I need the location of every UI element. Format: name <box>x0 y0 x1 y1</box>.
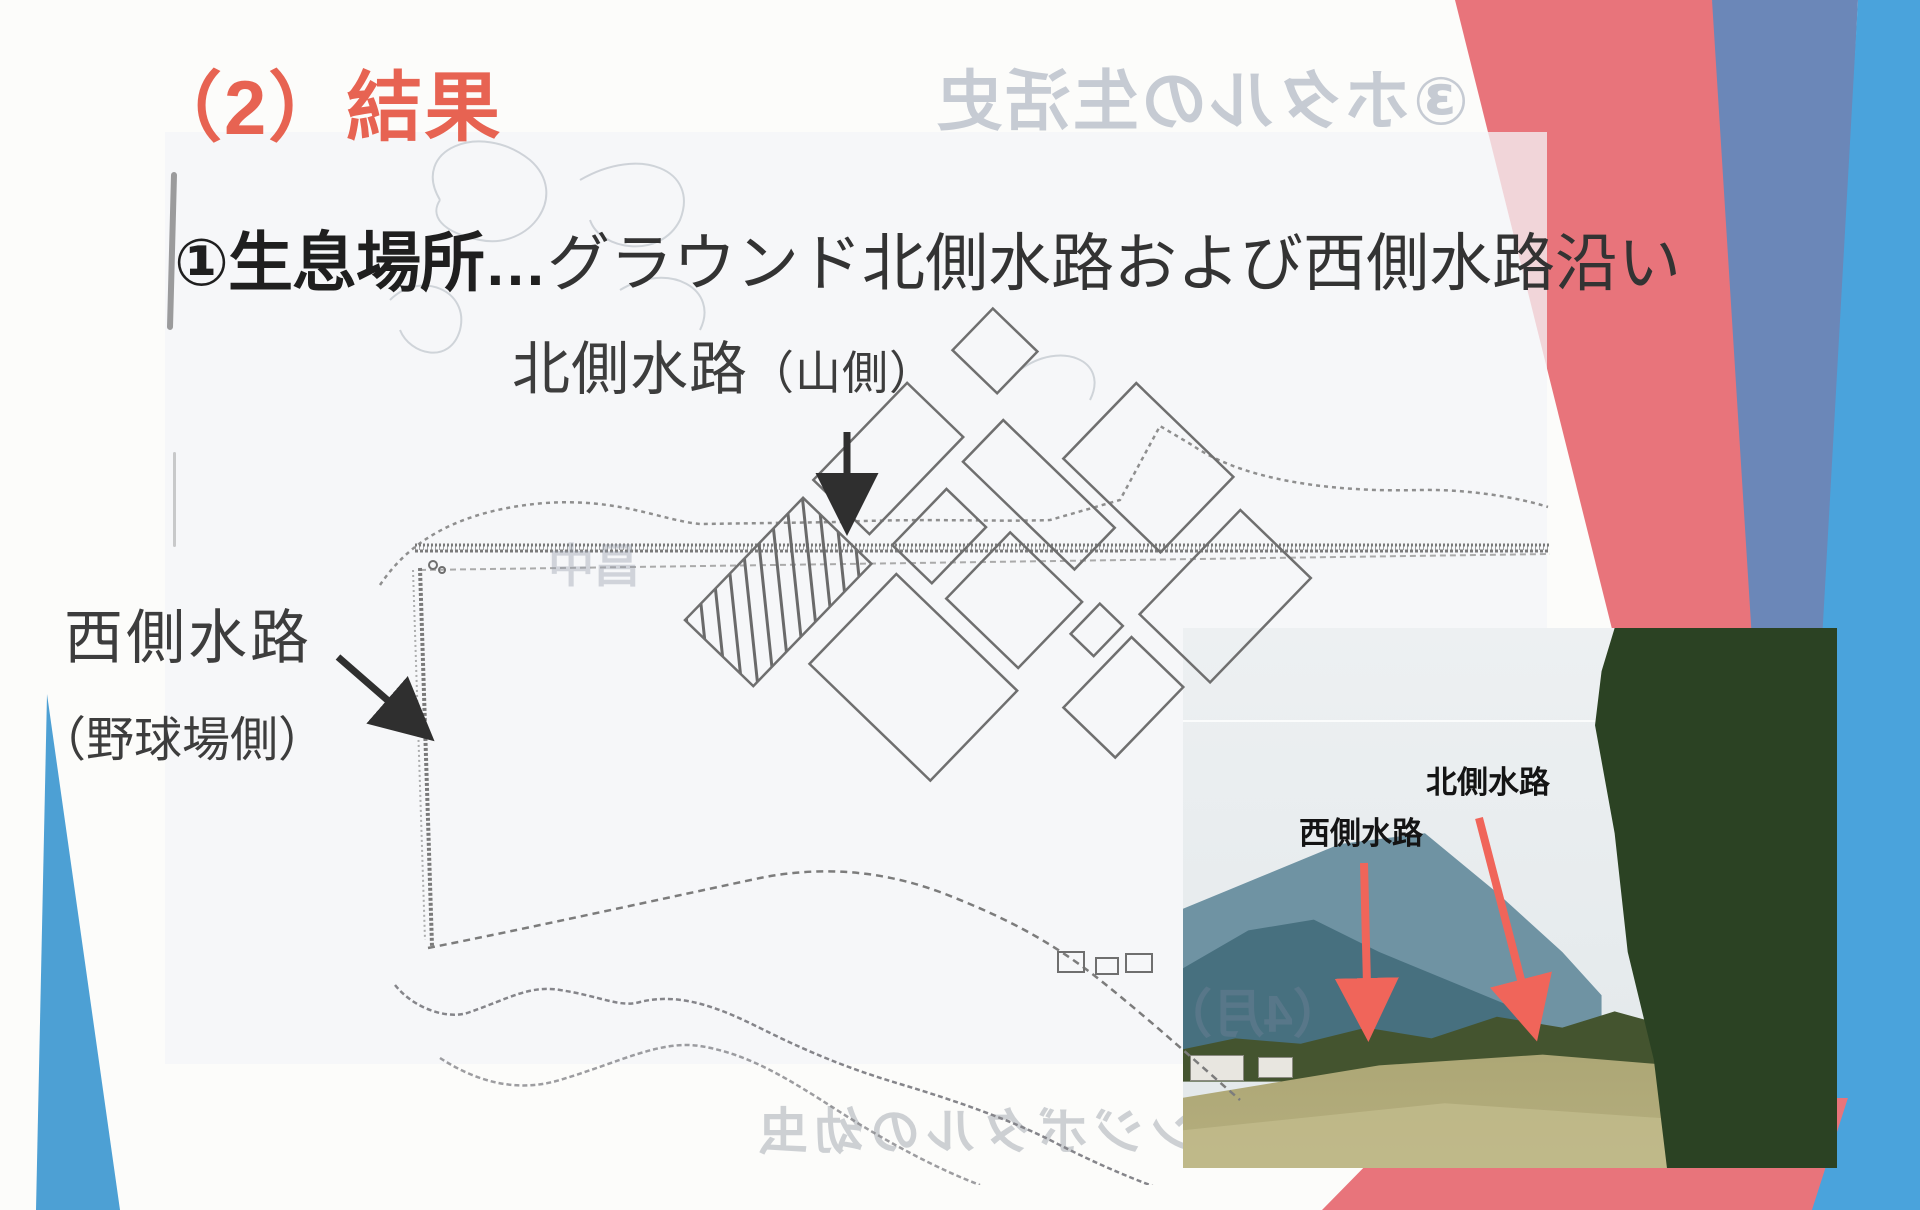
heading-bold-part: ①生息場所 <box>174 226 484 299</box>
slide-title: （2）結果 <box>146 46 502 156</box>
hatched-building <box>685 498 871 686</box>
bleed-through-text-top: ③ホタルの生活史 <box>935 48 1469 144</box>
ground-boundary <box>428 871 1240 1100</box>
label-west-waterway: 西側水路 <box>64 590 312 675</box>
label-north-paren: （山側） <box>748 347 936 399</box>
ground-top-edge <box>420 554 1550 570</box>
label-north-main: 北側水路 <box>512 337 748 402</box>
heading-ellipsis: … <box>484 229 547 299</box>
west-waterway-line <box>413 568 432 946</box>
label-west-waterway-paren: （野球場側） <box>38 700 326 770</box>
heading-rest: グラウンド北側水路および西側水路沿い <box>547 229 1681 299</box>
road-line-1 <box>395 985 1180 1185</box>
result-heading: ①生息場所…グラウンド北側水路および西側水路沿い <box>174 210 1681 304</box>
label-north-waterway: 北側水路（山側） <box>512 322 936 406</box>
north-waterway-line <box>415 545 1550 551</box>
scan-edge-smudge-2 <box>173 452 176 547</box>
west-callout-arrow <box>338 657 424 732</box>
road-line-2 <box>440 1045 980 1185</box>
